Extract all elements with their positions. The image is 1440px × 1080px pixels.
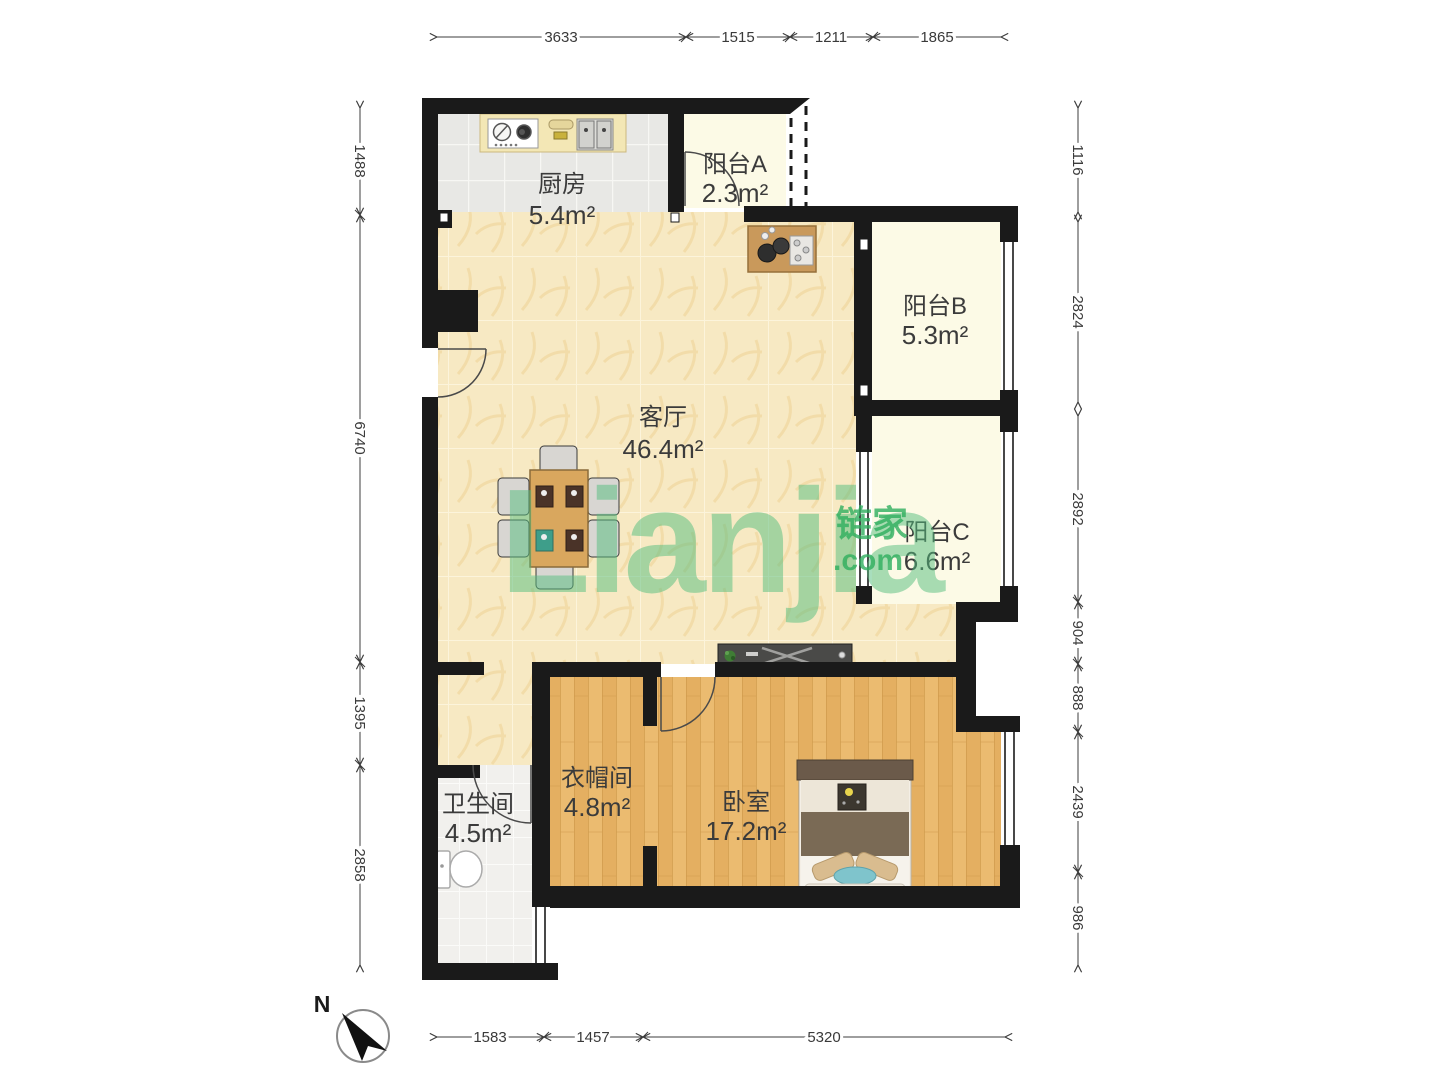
watermark-tld-text: .com [833,544,903,577]
balcony-a-area: 2.3m² [702,178,769,208]
wall-balconyB-C [854,400,1018,416]
dim-right-3: 2892 [1069,492,1086,525]
bathroom-label: 卫生间 [442,791,514,818]
floorplan-canvas: 厨房 5.4m² 阳台A 2.3m² 阳台B 5.3m² 客厅 46.4m² 阳… [0,0,1440,1080]
dim-bottom-1: 1583 [473,1029,506,1046]
bed-duvet [801,812,909,856]
lianjia-watermark: Lianjia 链家 .com [500,459,946,624]
dim-top-2: 1515 [721,29,754,46]
wall-bathroom-cloakroom [532,662,550,907]
kitchen-area: 5.4m² [529,200,596,230]
dim-bottom-3: 5320 [807,1029,840,1046]
hood-icon [549,120,573,129]
floorplan-page: 厨房 5.4m² 阳台A 2.3m² 阳台B 5.3m² 客厅 46.4m² 阳… [0,0,1440,1080]
wall-bathroom-bottom [422,963,558,980]
bed-bench [797,760,913,780]
dim-left-2: 6740 [351,421,368,454]
dim-left-1: 1488 [351,144,368,177]
balcony-b-label: 阳台B [903,293,967,320]
side-table [748,226,816,272]
tray-icon [790,236,813,265]
window-balconyC-right [1001,432,1017,586]
bedroom-label: 卧室 [722,789,770,816]
dim-right-6: 2439 [1069,785,1086,818]
dim-right-2: 2824 [1069,295,1086,328]
wall-top [422,98,790,114]
dim-right-7: 986 [1069,905,1086,930]
wall-kitchen-balconyA [668,114,684,212]
round-pillow [834,867,876,885]
wall-bedroom-bottom [550,886,1020,908]
wall-left-lower [422,397,438,980]
dim-bottom-2: 1457 [576,1029,609,1046]
dim-right-4: 904 [1069,620,1086,645]
cloakroom-area: 4.8m² [564,792,631,822]
cloakroom-label: 衣帽间 [561,765,633,792]
wall-balconyB-top [744,206,1018,222]
living-label: 客厅 [639,404,687,431]
dim-top-3: 1211 [815,29,847,46]
north-label: N [314,991,331,1017]
bed [797,760,913,896]
dim-top-4: 1865 [920,29,953,46]
balcony-b-area: 5.3m² [902,320,969,350]
wall-left-upper [422,98,438,348]
dim-right-1: 1116 [1069,144,1086,175]
kitchen-label: 厨房 [538,171,586,198]
balcony-a-label: 阳台A [703,151,767,178]
dim-top-1: 3633 [544,29,577,46]
dashed-opening [791,102,806,206]
kitchen-counter [480,114,626,152]
window-bathroom-bottom [532,907,550,963]
dim-left-3: 1395 [351,696,368,729]
compass: N [314,991,389,1062]
window-balconyB-right [1001,242,1017,390]
wall-bedroom-top-left [532,662,661,677]
dim-left-4: 2858 [351,848,368,881]
toilet-icon [437,851,482,888]
wall-bedroom-top-right [715,662,960,677]
window-bedroom-right [1001,732,1019,845]
bedroom-area: 17.2m² [706,816,787,846]
dim-right-5: 888 [1069,685,1086,710]
watermark-cn-text: 链家 [836,503,908,544]
bathroom-area: 4.5m² [445,818,512,848]
